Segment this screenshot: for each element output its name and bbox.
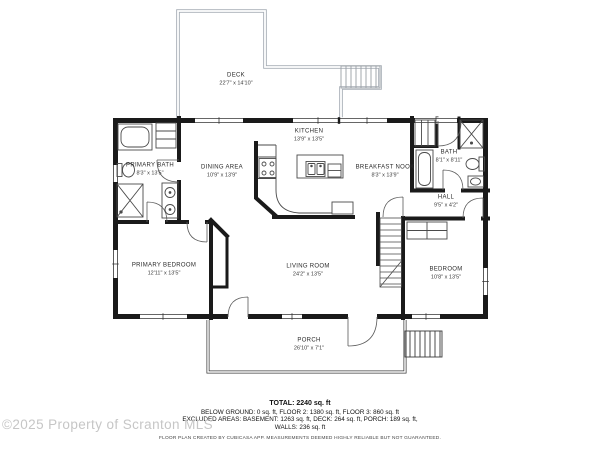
bath-closet: [415, 120, 435, 146]
hall-bath-fixtures: [415, 120, 485, 188]
sink-hall-bath: [468, 176, 484, 187]
bathtub-primary: [118, 124, 152, 150]
basement-stairs: [380, 218, 402, 287]
floor-plan-drawing: [0, 0, 600, 450]
porch-stairs: [405, 331, 442, 357]
total-area: TOTAL: 2240 sq. ft: [0, 400, 600, 409]
toilet-primary: [117, 163, 135, 177]
floor-plan-page: DECK 22'7" x 14'10" KITCHEN 13'9" x 13'5…: [0, 0, 600, 450]
stove: [259, 159, 276, 178]
linen-closet-primary: [156, 123, 176, 148]
shower-primary: [117, 184, 143, 217]
kitchen-island: [297, 155, 343, 178]
toilet-hall-bath: [466, 157, 485, 171]
deck-outline: [178, 11, 380, 118]
bedroom-closet: [407, 222, 447, 239]
vanity-double-sink: [162, 183, 178, 218]
kitchen-fixtures: [258, 145, 353, 214]
shower-hall-bath: [460, 120, 483, 148]
bathtub-hall-bath: [416, 150, 433, 188]
disclaimer-text: FLOOR PLAN CREATED BY CUBICASA APP. MEAS…: [0, 436, 600, 441]
primary-bath-fixtures: [117, 123, 178, 218]
deck-stairs: [341, 66, 380, 88]
mls-watermark: ©2025 Property of Scranton MLS: [2, 417, 213, 432]
summary-line-1: BELOW GROUND: 0 sq. ft, FLOOR 2: 1380 sq…: [0, 409, 600, 416]
